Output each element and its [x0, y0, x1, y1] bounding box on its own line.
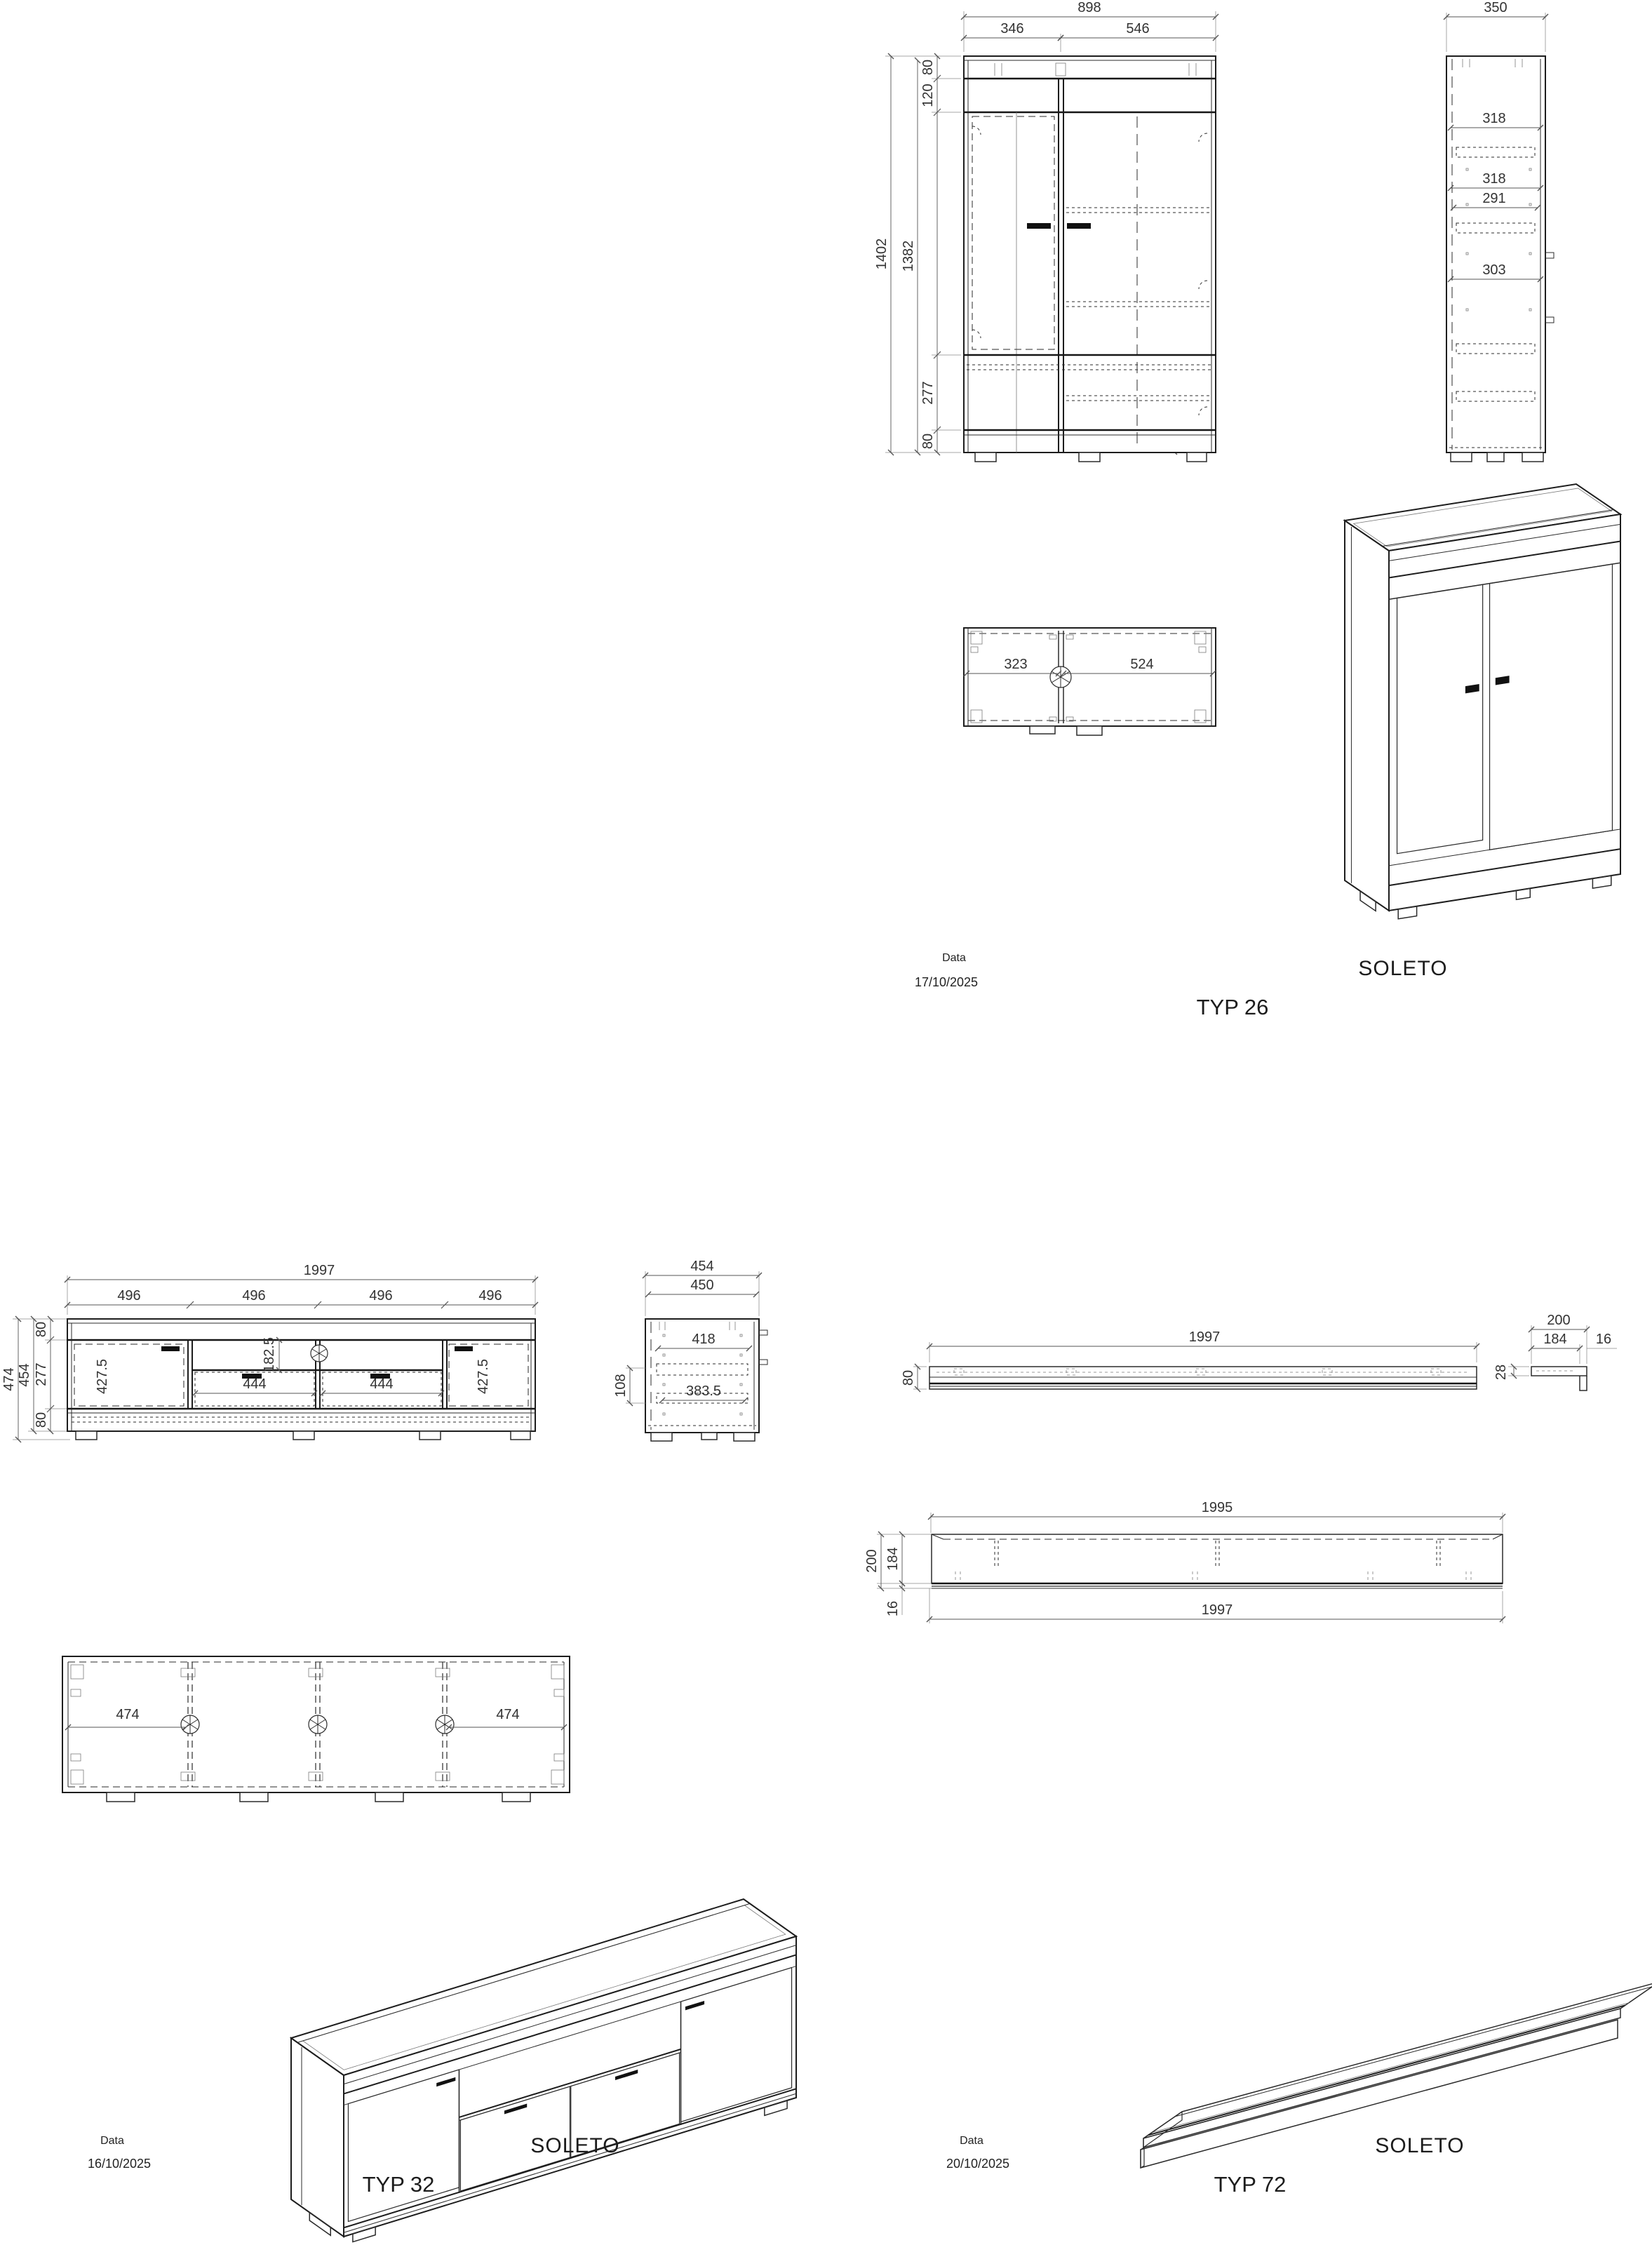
dim-typ32-444-1: 444 — [243, 1376, 266, 1392]
dim-typ32-3835: 383.5 — [686, 1383, 721, 1399]
dim-typ32-444-2: 444 — [370, 1376, 393, 1392]
dim-typ32-496-2: 496 — [242, 1288, 265, 1304]
typ26-foot — [1079, 453, 1100, 462]
dim-typ32-474: 474 — [1, 1367, 17, 1390]
typ26-front-body — [964, 56, 1216, 462]
typ26-date-label: Data — [942, 952, 966, 964]
dim-typ32-total-width: 1997 — [304, 1263, 335, 1278]
typ26-date: 17/10/2025 — [915, 975, 978, 989]
dim-typ32-450: 450 — [690, 1278, 713, 1293]
dim-typ26-depth: 350 — [1484, 0, 1507, 15]
typ32-front-body — [67, 1319, 535, 1440]
dim-typ32-474R: 474 — [496, 1707, 519, 1722]
dim-typ32-bottom80: 80 — [34, 1412, 49, 1428]
typ72-front-view: 1997 80 — [901, 1329, 1477, 1389]
dim-typ32-top80: 80 — [34, 1322, 49, 1337]
sheet-typ72: 1997 80 200 184 16 28 1995 — [864, 1313, 1652, 2197]
dim-typ26-total-width: 898 — [1077, 0, 1101, 15]
typ26-foot — [975, 453, 996, 462]
typ26-right-door-handle — [1067, 223, 1091, 229]
dim-typ72-top184: 184 — [885, 1547, 901, 1570]
dim-typ26-top524: 524 — [1130, 657, 1153, 672]
typ26-left-door-handle — [1027, 223, 1051, 229]
typ72-brand: SOLETO — [1375, 2134, 1464, 2157]
dim-typ72-184: 184 — [1543, 1332, 1566, 1347]
typ72-end-lip — [1580, 1376, 1587, 1390]
dim-typ72-200: 200 — [1547, 1313, 1570, 1328]
dim-typ32-108: 108 — [613, 1374, 629, 1397]
typ32-date: 16/10/2025 — [88, 2157, 151, 2171]
typ26-front-view: 898 346 546 1402 1382 80 120 277 80 599 … — [874, 0, 1216, 462]
typ32-side-view: 454 450 418 383.5 108 — [613, 1259, 767, 1441]
typ72-date: 20/10/2025 — [946, 2157, 1009, 2171]
dim-typ72-top200: 200 — [864, 1549, 880, 1572]
dim-typ32-454d: 454 — [690, 1259, 713, 1274]
dim-typ32-418: 418 — [692, 1332, 715, 1347]
dim-typ26-inner-height: 1382 — [901, 241, 916, 272]
drawing-page: 898 346 546 1402 1382 80 120 277 80 599 … — [0, 0, 1652, 2245]
dim-typ26-shelf303: 303 — [1482, 262, 1505, 278]
typ32-left-door-handle — [161, 1346, 180, 1351]
dim-typ32-277: 277 — [34, 1362, 49, 1386]
typ32-brand: SOLETO — [530, 2134, 619, 2157]
typ72-iso-front-edge — [1143, 2009, 1620, 2147]
typ72-iso-top-face — [1143, 1982, 1652, 2138]
dim-typ72-length: 1997 — [1189, 1329, 1221, 1345]
dim-typ26-top80: 80 — [920, 60, 936, 75]
dim-typ26-120: 120 — [920, 83, 936, 107]
typ26-brand: SOLETO — [1358, 957, 1447, 980]
dim-typ26-top323: 323 — [1004, 657, 1027, 672]
typ26-foot — [1187, 453, 1207, 462]
typ32-front-view: 1997 496 496 496 496 474 454 80 277 80 — [1, 1263, 535, 1440]
technical-drawing-svg: 898 346 546 1402 1382 80 120 277 80 599 … — [0, 0, 1652, 2245]
dim-typ32-496-1: 496 — [117, 1288, 140, 1304]
typ72-title: TYP 72 — [1214, 2172, 1287, 2197]
sheet-typ26: 898 346 546 1402 1382 80 120 277 80 599 … — [874, 0, 1620, 1019]
dim-typ26-right-width: 546 — [1126, 21, 1149, 36]
typ72-date-label: Data — [960, 2135, 983, 2147]
typ72-end-view: 200 184 16 28 — [1493, 1313, 1617, 1390]
dim-typ72-top16: 16 — [885, 1601, 901, 1616]
typ32-right-door-handle — [455, 1346, 473, 1351]
typ32-bottom-view: 474 474 — [62, 1656, 570, 1802]
typ26-top-view: 323 524 — [964, 628, 1216, 735]
typ26-iso-left-face — [1345, 521, 1389, 920]
dim-typ32-doorR: 427.5 — [476, 1359, 491, 1394]
dim-typ26-bottom80: 80 — [920, 434, 936, 449]
dim-typ32-496-4: 496 — [478, 1288, 502, 1304]
dim-typ26-shelf291: 291 — [1482, 191, 1505, 206]
dim-typ26-total-height: 1402 — [874, 239, 889, 270]
dim-typ72-height: 80 — [901, 1370, 916, 1386]
dim-typ72-16: 16 — [1596, 1332, 1611, 1347]
dim-typ72-1995: 1995 — [1202, 1500, 1233, 1515]
dim-typ26-277: 277 — [920, 381, 936, 404]
typ26-isometric-view — [1345, 484, 1620, 920]
typ26-title-block: Data 17/10/2025 SOLETO TYP 26 — [915, 952, 1448, 1019]
typ26-side-view: 350 318 318 291 303 — [1446, 0, 1554, 462]
sheet-typ32: 1997 496 496 496 496 474 454 80 277 80 — [1, 1259, 796, 2245]
dim-typ32-454: 454 — [17, 1363, 32, 1386]
dim-typ26-shelf318a: 318 — [1482, 111, 1505, 126]
dim-typ72-28: 28 — [1493, 1365, 1509, 1380]
dim-typ32-496-3: 496 — [369, 1288, 392, 1304]
typ26-title: TYP 26 — [1197, 995, 1269, 1019]
dim-typ26-left-width: 346 — [1000, 21, 1023, 36]
typ72-top-view: 1995 1997 200 184 16 — [864, 1500, 1503, 1623]
dim-typ26-shelf318b: 318 — [1482, 171, 1505, 187]
dim-typ72-1997b: 1997 — [1202, 1602, 1233, 1618]
dim-typ32-474L: 474 — [116, 1707, 139, 1722]
typ26-iso-front-face — [1389, 514, 1620, 920]
dim-typ32-doorL: 427.5 — [95, 1359, 110, 1394]
dim-typ32-niche: 182.5 — [262, 1337, 277, 1372]
typ32-title: TYP 32 — [363, 2172, 435, 2197]
typ32-date-label: Data — [100, 2135, 124, 2147]
